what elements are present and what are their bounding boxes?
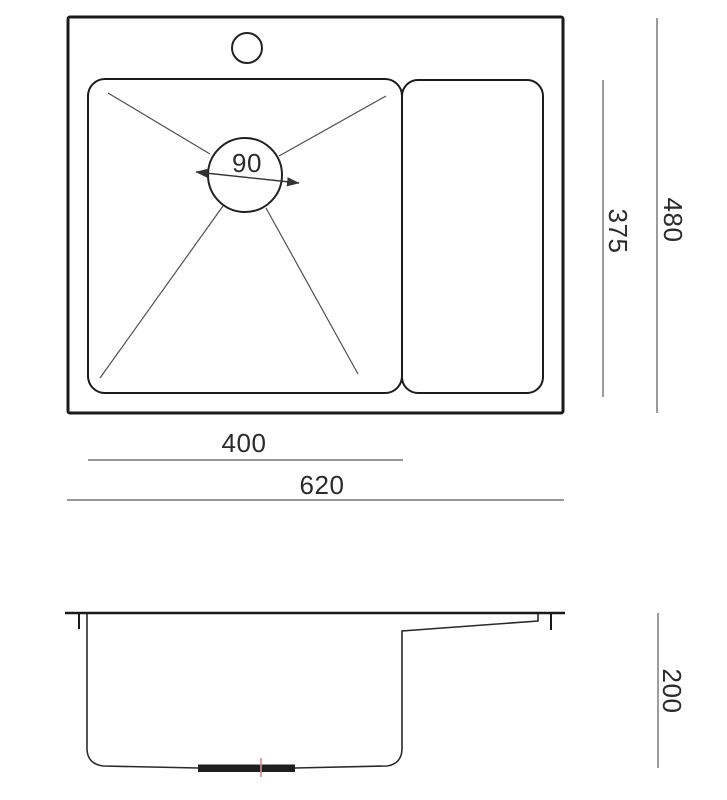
overall-width-label: 620 xyxy=(300,472,345,498)
sink-technical-drawing: 90 375 480 400 620 200 xyxy=(0,0,727,800)
faucet-hole xyxy=(232,33,262,63)
slope-line-bottom-right xyxy=(266,208,358,374)
overall-depth-label: 480 xyxy=(660,198,686,243)
slope-line-top-right xyxy=(279,96,386,156)
drain-diameter-label: 90 xyxy=(232,150,262,176)
basin-outline xyxy=(88,79,402,393)
drain-flange xyxy=(198,765,295,773)
basin-depth-label: 375 xyxy=(605,209,631,254)
bowl-height-label: 200 xyxy=(659,669,685,714)
basin-width-label: 400 xyxy=(222,430,267,456)
drainer-outline xyxy=(402,80,543,393)
top-view-outer-rim xyxy=(68,17,563,413)
bowl-section-outline xyxy=(87,614,538,768)
drawing-svg xyxy=(0,0,727,800)
slope-line-top-left xyxy=(108,93,210,154)
slope-line-bottom-left xyxy=(100,206,223,378)
